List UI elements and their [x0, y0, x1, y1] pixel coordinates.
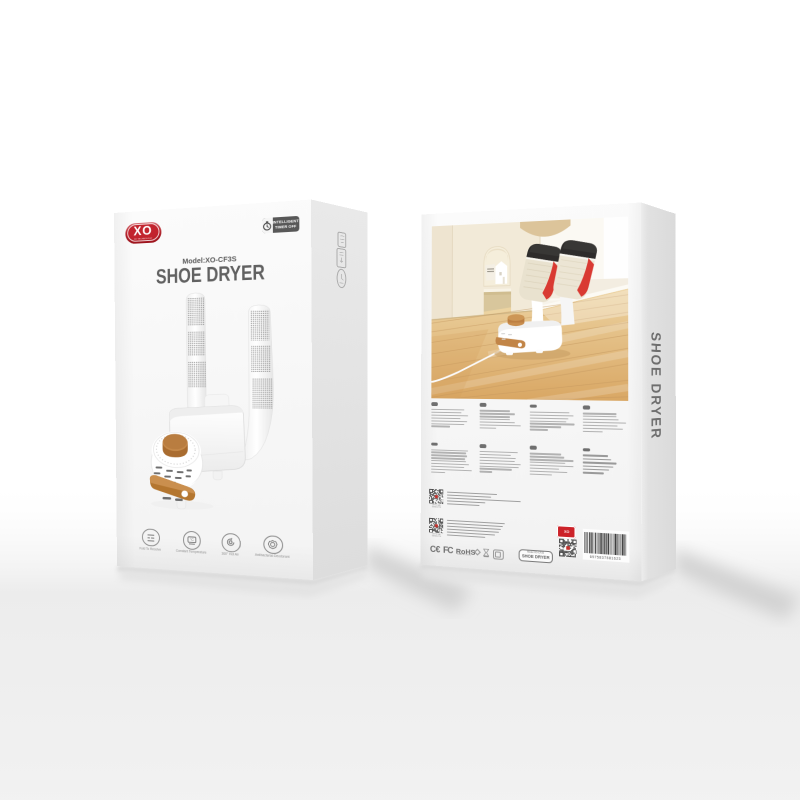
- svg-text:°C: °C: [190, 538, 195, 542]
